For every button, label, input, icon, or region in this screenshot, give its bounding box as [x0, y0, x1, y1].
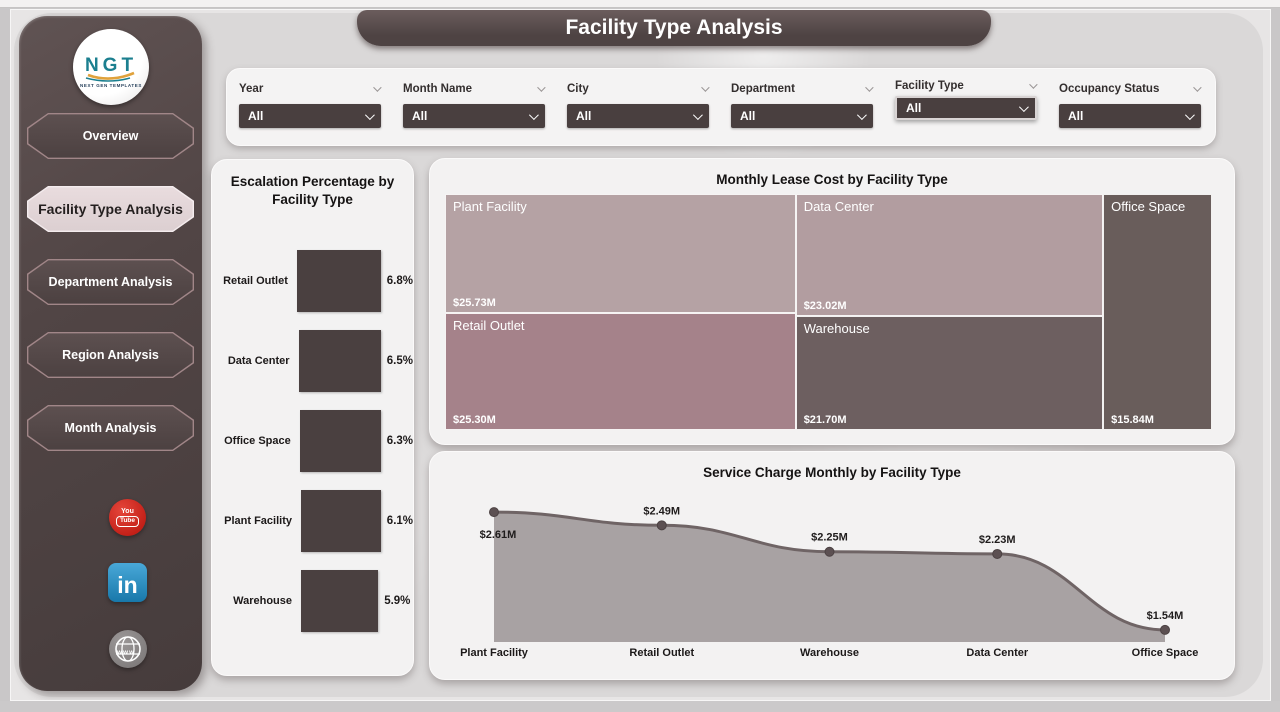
treemap-tile-office-space[interactable]: Office Space$15.84M: [1103, 194, 1212, 430]
filter-department: Department All: [731, 81, 873, 145]
page-title: Facility Type Analysis: [565, 16, 782, 40]
bar-data-center[interactable]: [299, 330, 381, 392]
tile-name: Plant Facility: [453, 199, 527, 214]
window-top-strip: [0, 0, 1280, 8]
dropdown-value: All: [1068, 109, 1083, 123]
website-globe-icon[interactable]: www: [109, 630, 147, 668]
chevron-down-icon[interactable]: [373, 83, 381, 91]
tile-value: $25.30M: [453, 414, 496, 426]
sidebar-item-label: Region Analysis: [62, 348, 159, 362]
treemap-tile-plant-facility[interactable]: Plant Facility$25.73M: [445, 194, 796, 313]
chevron-down-icon: [857, 110, 867, 120]
dashboard-canvas: NGT NEXT GEN TEMPLATES Overview Facility…: [10, 9, 1271, 701]
sidebar-item-label: Facility Type Analysis: [38, 201, 183, 217]
chart-title: Monthly Lease Cost by Facility Type: [430, 159, 1234, 187]
treemap-tile-data-center[interactable]: Data Center$23.02M: [796, 194, 1103, 316]
filter-label: Facility Type: [895, 80, 964, 92]
chevron-down-icon: [1019, 102, 1029, 112]
service-charge-line-panel: Service Charge Monthly by Facility Type …: [429, 451, 1235, 680]
data-point[interactable]: [1161, 625, 1170, 634]
chevron-down-icon[interactable]: [1029, 80, 1037, 88]
filter-label: Occupancy Status: [1059, 83, 1159, 95]
year-dropdown[interactable]: All: [239, 104, 381, 128]
tile-value: $21.70M: [804, 414, 847, 426]
chevron-down-icon: [1185, 110, 1195, 120]
filter-facility-type: Facility Type All: [895, 81, 1037, 145]
chevron-down-icon[interactable]: [865, 83, 873, 91]
sidebar-item-department-analysis[interactable]: Department Analysis: [27, 259, 194, 305]
bar-warehouse[interactable]: [301, 570, 378, 632]
value-label: 5.9%: [384, 595, 410, 607]
window-bottom-strip: [0, 701, 1280, 712]
youtube-icon[interactable]: You Tube: [109, 499, 146, 536]
tile-name: Warehouse: [804, 321, 870, 336]
department-dropdown[interactable]: All: [731, 104, 873, 128]
chevron-down-icon: [693, 110, 703, 120]
filter-occupancy-status: Occupancy Status All: [1059, 81, 1201, 145]
page-title-bar: Facility Type Analysis: [357, 10, 991, 46]
filter-city: City All: [567, 81, 709, 145]
tile-value: $23.02M: [804, 300, 847, 312]
data-point-label: $2.61M: [480, 529, 517, 541]
data-point-label: $2.49M: [643, 505, 680, 517]
chevron-down-icon: [365, 110, 375, 120]
tile-value: $15.84M: [1111, 414, 1154, 426]
dropdown-value: All: [576, 109, 591, 123]
data-point[interactable]: [490, 508, 499, 517]
bar-retail-outlet[interactable]: [297, 250, 381, 312]
sidebar-item-month-analysis[interactable]: Month Analysis: [27, 405, 194, 451]
ngt-logo-icon: NGT NEXT GEN TEMPLATES: [73, 29, 149, 105]
category-label: Plant Facility: [221, 515, 292, 527]
chevron-down-icon: [529, 110, 539, 120]
tile-name: Data Center: [804, 199, 874, 214]
sidebar-item-label: Overview: [83, 129, 139, 143]
sidebar-item-region-analysis[interactable]: Region Analysis: [27, 332, 194, 378]
tile-name: Office Space: [1111, 199, 1185, 214]
filter-label: Department: [731, 83, 795, 95]
city-dropdown[interactable]: All: [567, 104, 709, 128]
month-name-dropdown[interactable]: All: [403, 104, 545, 128]
category-label: Office Space: [221, 435, 291, 447]
escalation-bar-chart-panel: Escalation Percentage by Facility Type R…: [211, 159, 414, 676]
bar-row: Plant Facility6.1%: [212, 490, 413, 552]
data-point[interactable]: [825, 547, 834, 556]
logo-subtext: NEXT GEN TEMPLATES: [80, 83, 142, 88]
logo-swoosh-icon: [84, 70, 138, 82]
dropdown-value: All: [906, 101, 921, 115]
tile-name: Retail Outlet: [453, 318, 525, 333]
lease-cost-treemap-panel: Monthly Lease Cost by Facility Type Plan…: [429, 158, 1235, 445]
filter-bar: Year All Month Name All City All Departm…: [226, 68, 1216, 146]
filter-label: Month Name: [403, 83, 472, 95]
sidebar-item-label: Department Analysis: [49, 275, 173, 289]
filter-month-name: Month Name All: [403, 81, 545, 145]
sidebar-item-facility-type-analysis[interactable]: Facility Type Analysis: [27, 186, 194, 232]
value-label: 6.5%: [387, 355, 413, 367]
facility-type-dropdown[interactable]: All: [895, 96, 1037, 120]
dropdown-value: All: [412, 109, 427, 123]
bar-office-space[interactable]: [300, 410, 381, 472]
data-point-label: $2.23M: [979, 534, 1016, 546]
chart-title: Escalation Percentage by Facility Type: [212, 160, 413, 209]
category-label: Retail Outlet: [221, 275, 288, 287]
data-point-label: $2.25M: [811, 532, 848, 544]
bar-chart: Retail Outlet6.8% Data Center6.5% Office…: [212, 250, 413, 632]
bar-row: Office Space6.3%: [212, 410, 413, 472]
tile-value: $25.73M: [453, 297, 496, 309]
dropdown-value: All: [248, 109, 263, 123]
treemap: Plant Facility$25.73M Data Center$23.02M…: [445, 194, 1212, 430]
bar-row: Warehouse5.9%: [212, 570, 413, 632]
value-label: 6.3%: [387, 435, 413, 447]
filter-year: Year All: [239, 81, 381, 145]
dropdown-value: All: [740, 109, 755, 123]
linkedin-icon[interactable]: in: [108, 563, 147, 602]
treemap-tile-retail-outlet[interactable]: Retail Outlet$25.30M: [445, 313, 796, 430]
bar-row: Retail Outlet6.8%: [212, 250, 413, 312]
treemap-tile-warehouse[interactable]: Warehouse$21.70M: [796, 316, 1103, 431]
sidebar: NGT NEXT GEN TEMPLATES Overview Facility…: [19, 16, 202, 691]
data-point-label: $1.54M: [1147, 610, 1184, 622]
filter-label: Year: [239, 83, 263, 95]
bar-row: Data Center6.5%: [212, 330, 413, 392]
value-label: 6.8%: [387, 275, 413, 287]
chevron-down-icon[interactable]: [1193, 83, 1201, 91]
area-line-chart: $2.61M$2.49M$2.25M$2.23M$1.54M: [430, 452, 1236, 681]
chevron-down-icon[interactable]: [537, 83, 545, 91]
occupancy-status-dropdown[interactable]: All: [1059, 104, 1201, 128]
bar-plant-facility[interactable]: [301, 490, 381, 552]
chevron-down-icon[interactable]: [701, 83, 709, 91]
value-label: 6.1%: [387, 515, 413, 527]
filter-label: City: [567, 83, 589, 95]
category-label: Data Center: [221, 355, 290, 367]
sidebar-item-overview[interactable]: Overview: [27, 113, 194, 159]
sidebar-item-label: Month Analysis: [65, 421, 157, 435]
category-label: Warehouse: [221, 595, 292, 607]
data-point[interactable]: [993, 549, 1002, 558]
data-point[interactable]: [657, 521, 666, 530]
